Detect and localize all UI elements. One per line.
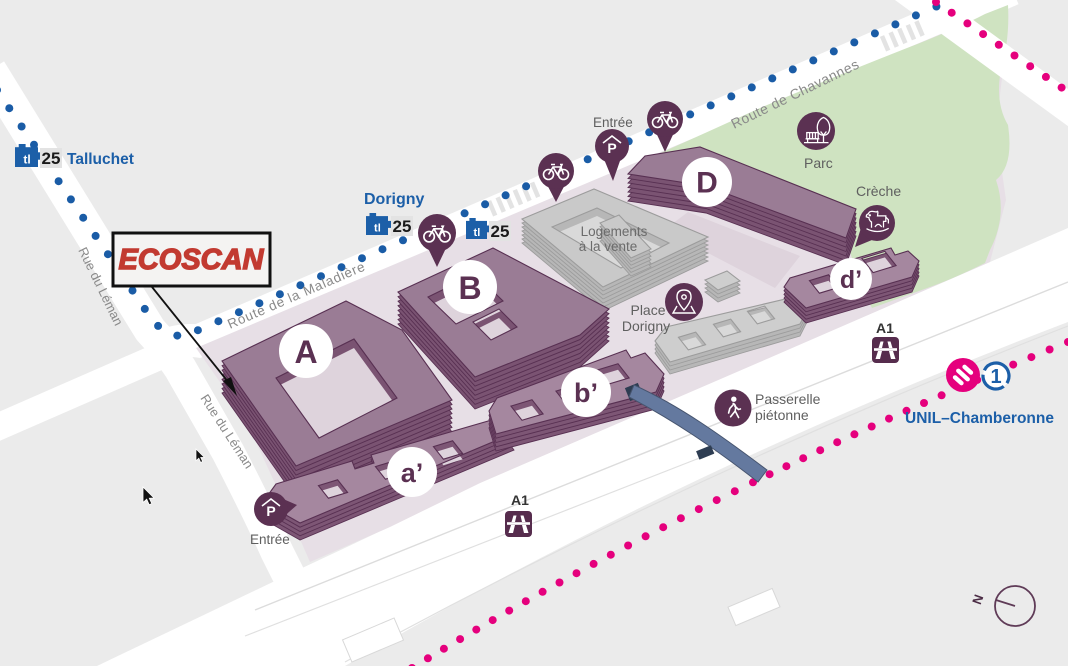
svg-text:Parc: Parc: [804, 155, 833, 171]
svg-text:Entrée: Entrée: [593, 115, 633, 130]
svg-text:D: D: [696, 167, 718, 200]
svg-text:Entrée: Entrée: [250, 532, 290, 547]
svg-text:25: 25: [491, 222, 510, 241]
svg-text:Dorigny: Dorigny: [622, 318, 670, 334]
svg-text:P: P: [607, 140, 616, 156]
svg-text:tl: tl: [474, 227, 481, 239]
svg-text:P: P: [266, 503, 275, 519]
svg-text:Place: Place: [630, 302, 665, 318]
svg-text:tl: tl: [374, 223, 381, 235]
svg-text:tl: tl: [23, 153, 30, 167]
svg-text:25: 25: [393, 217, 412, 236]
svg-text:A: A: [294, 334, 317, 370]
svg-text:b’: b’: [574, 378, 598, 408]
svg-text:piétonne: piétonne: [755, 407, 809, 423]
svg-text:UNIL–Chamberonne: UNIL–Chamberonne: [905, 410, 1054, 427]
svg-text:A1: A1: [511, 492, 529, 508]
svg-text:B: B: [458, 270, 481, 306]
svg-text:Logements: Logements: [581, 224, 648, 239]
svg-text:Dorigny: Dorigny: [364, 191, 425, 208]
svg-text:A1: A1: [876, 320, 894, 336]
svg-text:Talluchet: Talluchet: [67, 151, 134, 168]
svg-text:d’: d’: [840, 266, 862, 294]
svg-text:Passerelle: Passerelle: [755, 391, 821, 407]
svg-text:1: 1: [990, 366, 1001, 388]
svg-text:25: 25: [42, 149, 61, 168]
svg-text:ECOSCAN: ECOSCAN: [118, 244, 264, 276]
svg-text:à la vente: à la vente: [579, 239, 638, 254]
svg-text:a’: a’: [401, 458, 424, 488]
svg-text:Crèche: Crèche: [856, 183, 901, 199]
